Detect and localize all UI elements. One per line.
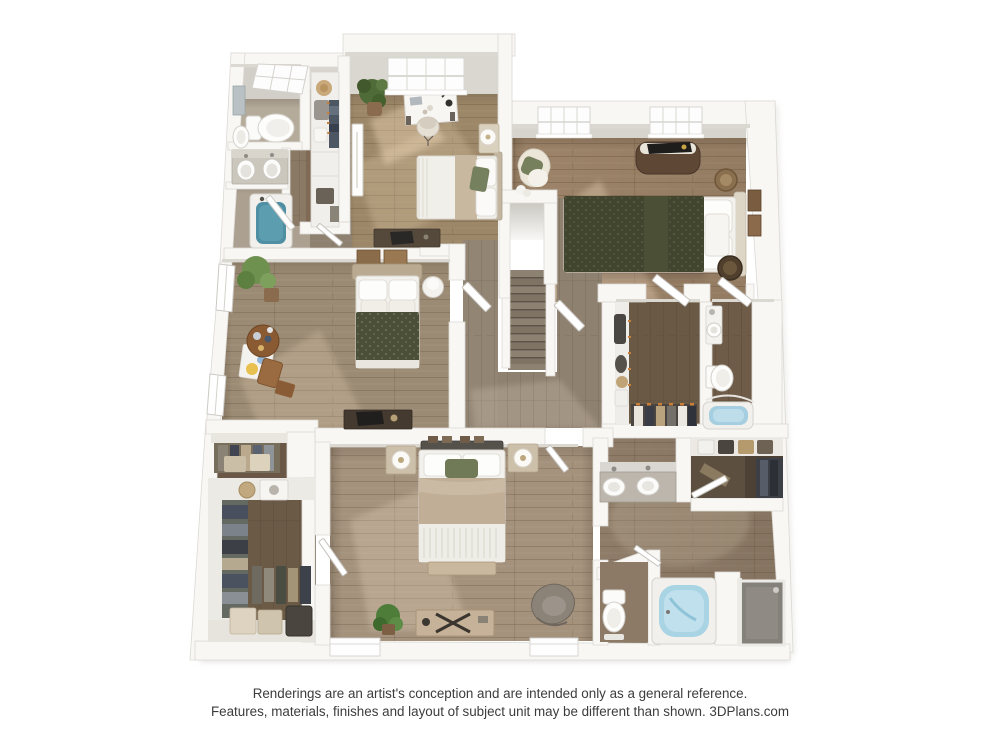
svg-text:Features, materials, finishes: Features, materials, finishes and layout… xyxy=(211,704,789,719)
svg-text:Renderings are an artist's con: Renderings are an artist's conception an… xyxy=(253,686,748,701)
